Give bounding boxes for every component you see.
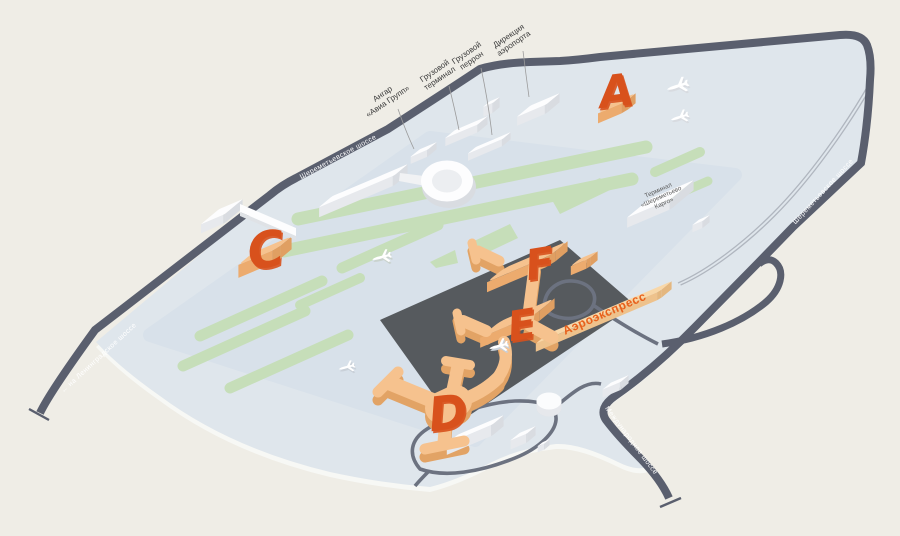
terminal-d-letter[interactable]: D: [425, 384, 470, 443]
terminal-c-letter[interactable]: C: [244, 219, 288, 281]
map-canvas: Шереметьевское шоссе Шереметьевское шосс…: [0, 0, 900, 536]
airport-map: Шереметьевское шоссе Шереметьевское шосс…: [0, 0, 900, 536]
cylinder-building: [537, 393, 562, 410]
round-terminal-roof: [432, 170, 462, 193]
